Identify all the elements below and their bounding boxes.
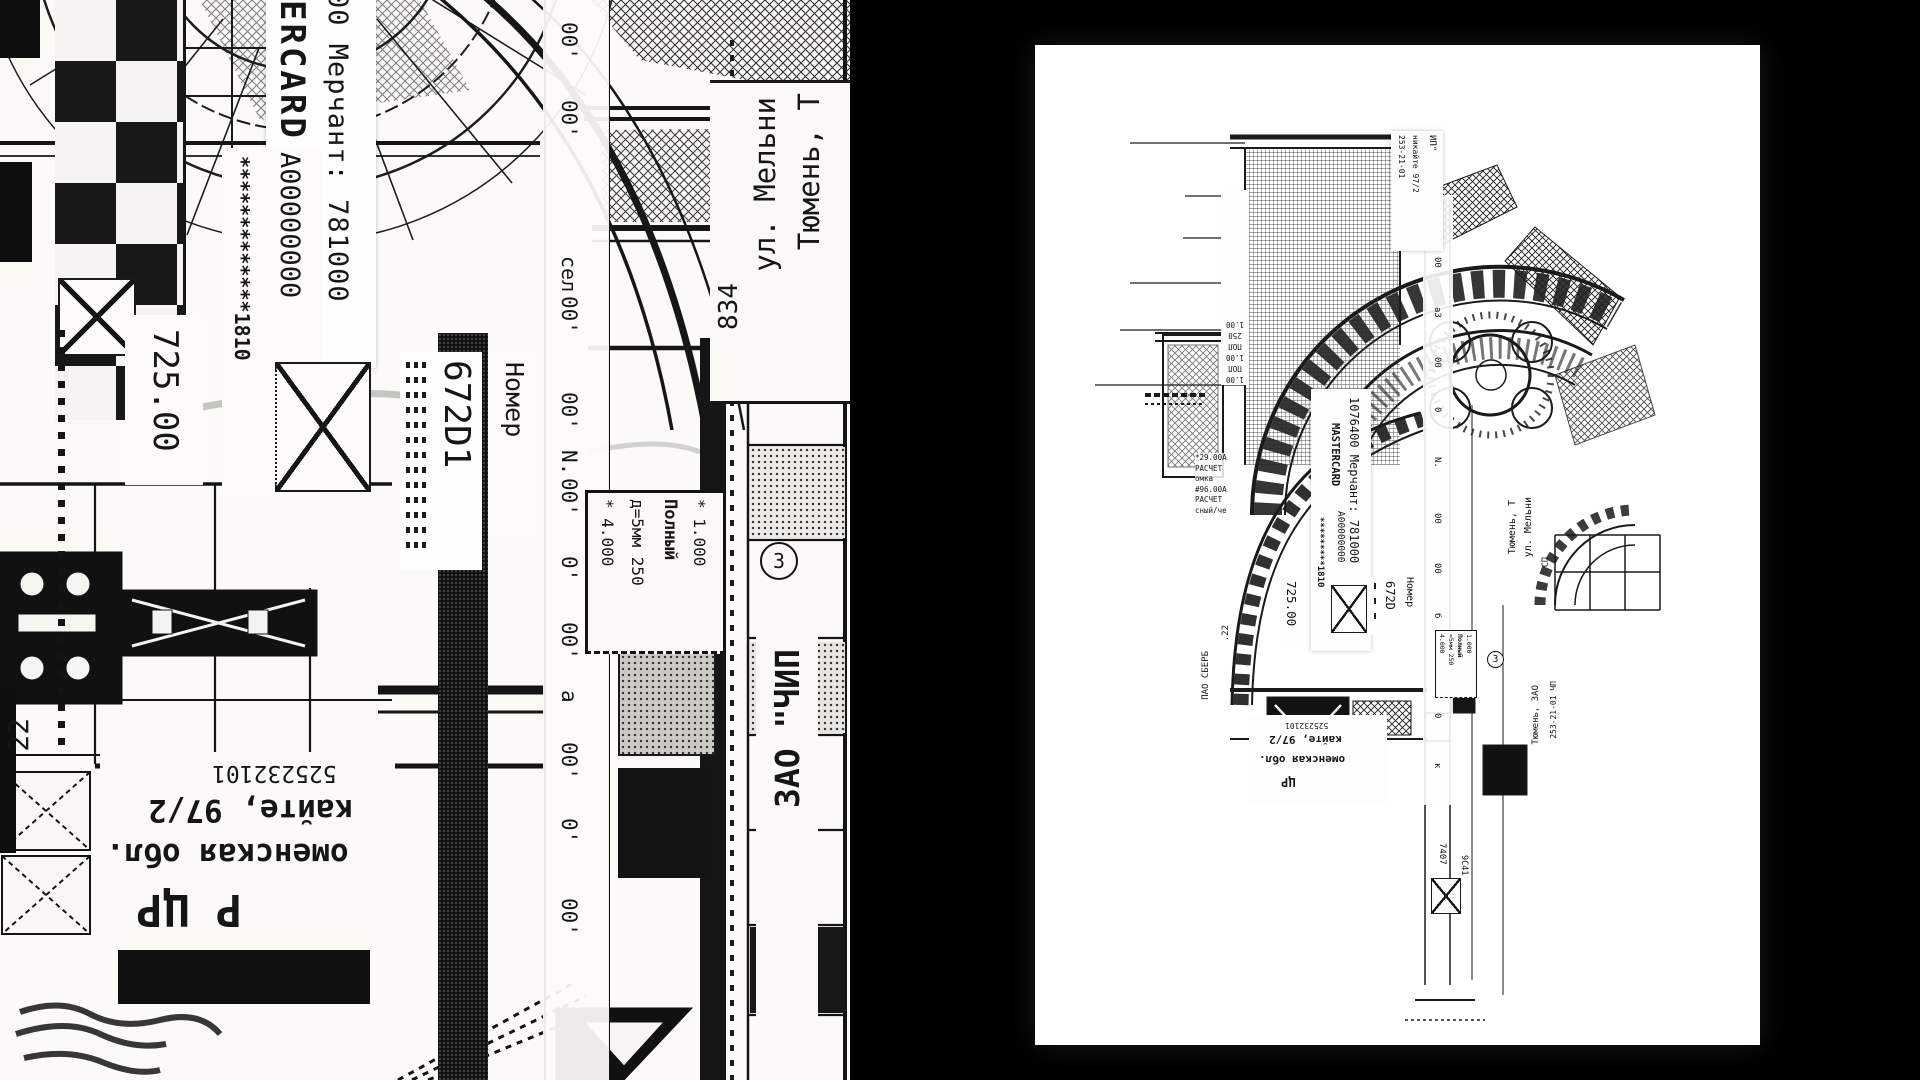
art-bottom-crossed-box — [1431, 878, 1461, 914]
tape-mark: 0' — [557, 818, 581, 843]
wall-tag: 250 — [1221, 330, 1249, 341]
nomer-text: Номер — [500, 362, 529, 437]
art-sber-text: ПАО СБЕРБ — [1201, 651, 1211, 700]
tally-dashes — [414, 362, 418, 557]
address-city-text: Тюмень, Т — [792, 93, 826, 250]
art-tape-mark: 0 — [1432, 407, 1442, 412]
black-bar — [118, 950, 370, 1004]
art-tape-mark: 00 — [1432, 563, 1442, 574]
address-street-text: ул. Мельни — [748, 97, 782, 272]
art-code-patch: 672D — [1371, 577, 1401, 635]
tape-mark: 00' — [557, 478, 581, 516]
edge-block — [0, 0, 40, 58]
tape-mark: 00' — [557, 392, 581, 430]
art-street-text: ул. Мельни — [1523, 497, 1534, 557]
art-auth-text: А00000000 — [1335, 511, 1346, 562]
tape-mark: сел — [557, 256, 581, 292]
amount-text: 725.00 — [145, 329, 185, 452]
tape-mark: 00' — [557, 296, 581, 334]
address-num-text: 834 — [714, 283, 744, 330]
wall-tag: 1.00 — [1221, 352, 1249, 363]
nomer-patch: Номер — [490, 356, 536, 536]
art-merchant-text: 1076400 Мерчант: 781000 — [1347, 397, 1361, 563]
art-tape-mark: N. — [1432, 457, 1442, 468]
art-zeros-tape: 00 00 а3 00 0 N. 00 00 б 00 0 к — [1423, 195, 1453, 805]
reversed-number: 525232101 — [212, 760, 337, 786]
card-mask-text: *************1810 — [230, 156, 254, 361]
art-top-line: никайте 97/2 — [1411, 135, 1420, 193]
edge-block — [0, 162, 32, 262]
art-sp-text: СП — [1541, 557, 1551, 567]
tape-mark: 00' — [557, 898, 581, 936]
wall-tag: ПОЛ — [1221, 363, 1249, 374]
art-bottom-code: 7407 — [1437, 843, 1447, 865]
art-tape-mark: а3 — [1432, 307, 1442, 318]
art-calc-block: *29.00А РАСЧЕТ омка #96.00А РАСЧЕТ сный/… — [1195, 453, 1243, 519]
receipt-brand-text: ERCARD — [272, 0, 312, 141]
art-tariff-line: 4.000 — [1438, 634, 1446, 654]
wall-tag: 1.00 — [1221, 374, 1249, 385]
reversed-line: оменская обл. — [106, 836, 349, 872]
art-top-line: ИП" — [1427, 135, 1437, 151]
code-patch: 672D1 — [400, 352, 482, 570]
black-square — [618, 768, 712, 878]
edge-block — [0, 688, 16, 853]
art-nomer-text: Номер — [1404, 577, 1415, 607]
tape-mark: 00' — [557, 22, 581, 60]
art-tariff-line: 1.000 — [1465, 634, 1473, 654]
art-tape-mark: 00 — [1432, 513, 1442, 524]
calc-line: РАСЧЕТ — [1195, 464, 1243, 475]
art-city-text: Тюмень, Т — [1507, 500, 1518, 554]
art-top-strip: ИП" никайте 97/2 253-21-01 — [1391, 131, 1443, 251]
art-right-strip-line: 253-21-01 ЧП — [1549, 681, 1558, 739]
art-tape-mark: к — [1432, 763, 1442, 768]
receipt-merchant-text: 00 Мерчант: 781000 — [322, 0, 353, 303]
calc-line: *29.00А — [1195, 453, 1243, 464]
calc-line: #96.00А — [1195, 485, 1243, 496]
tape-mark: 00' — [557, 622, 581, 660]
art-bottom-code2: 9С41 — [1459, 855, 1469, 875]
crossed-box — [275, 362, 371, 492]
tape-mark: N. — [557, 450, 581, 475]
address-strip: 834 ул. Мельни Тюмень, Т — [710, 80, 850, 404]
edge-number: 22 — [2, 718, 35, 752]
card-auth-text: А00000000 — [274, 152, 305, 298]
tariff-line: д=5мм 250 — [628, 499, 647, 586]
art-tape-mark: 00 — [1432, 257, 1442, 268]
tape-mark: 0' — [557, 556, 581, 581]
art-reversed-number: 525232101 — [1285, 721, 1328, 730]
tape-mark: а — [557, 690, 581, 703]
wall-tags: 1.00 ПОЛ 1.00 ПОЛ 250 1.00 — [1221, 190, 1249, 385]
tariff-box: * 1.000 Полный д=5мм 250 * 4.000 — [585, 490, 726, 654]
art-tape-mark: 00 — [1432, 357, 1442, 368]
collage-viewer: 22 ERCARD 00 Мерчант: 781000 ***********… — [0, 0, 1920, 1080]
art-right-strip-line: Тюмень, ЗАО — [1531, 685, 1541, 745]
art-tape-mark: б — [1432, 613, 1442, 618]
collage-detail-panel: 22 ERCARD 00 Мерчант: 781000 ***********… — [0, 0, 850, 1080]
art-reversed-line: ЦР — [1281, 775, 1295, 789]
art-brand-text: MASTERCARD — [1329, 423, 1341, 486]
tally-dashes — [422, 362, 426, 557]
tariff-line: * 1.000 — [690, 499, 709, 566]
art-amount-text: 725.00 — [1284, 581, 1299, 626]
art-circled-three: 3 — [1487, 651, 1504, 668]
art-tariff-line: =5мм 250 — [1447, 634, 1455, 665]
reversed-line: кайте, 97/2 — [148, 792, 353, 828]
textured-cell — [750, 447, 845, 538]
art-sber-n22: .22 — [1221, 625, 1231, 641]
tally-dashes — [406, 362, 410, 557]
tape-mark: 00' — [557, 100, 581, 138]
art-tally-dashes — [1374, 583, 1376, 627]
tariff-line: Полный — [660, 499, 680, 560]
zao-strip: ЗАО "ЧИП — [756, 635, 818, 1080]
circled-three: 3 — [760, 542, 798, 580]
art-code-text: 672D — [1383, 581, 1397, 610]
reversed-line: Р ЦР — [136, 884, 242, 935]
art-tariff-line: Полный — [1456, 634, 1464, 657]
tariff-line: * 4.000 — [598, 499, 617, 566]
tape-mark: 00' — [557, 742, 581, 780]
art-amount-patch: 725.00 — [1279, 575, 1303, 647]
calc-line: сный/че — [1195, 506, 1243, 517]
wall-tag: ПОЛ — [1221, 341, 1249, 352]
amount-patch: 725.00 — [125, 315, 203, 485]
zao-text: ЗАО "ЧИП — [768, 649, 807, 808]
grey-square — [618, 640, 716, 756]
calc-line: омка — [1195, 474, 1243, 485]
dotted-strip — [58, 330, 65, 745]
art-top-line: 253-21-01 — [1397, 135, 1406, 178]
art-crossed-box — [1331, 585, 1367, 633]
calc-line: РАСЧЕТ — [1195, 495, 1243, 506]
code-text: 672D1 — [436, 360, 477, 468]
art-tape-mark: 0 — [1432, 713, 1442, 718]
art-reversed-line: оменская обл. — [1259, 753, 1345, 766]
artwork-page: ИП" никайте 97/2 253-21-01 1.00 ПОЛ 1.00… — [1035, 45, 1760, 1045]
art-tariff-box: 1.000 Полный =5мм 250 4.000 — [1435, 630, 1477, 698]
art-reversed-line: кайте, 97/2 — [1269, 733, 1342, 746]
wall-tag: 1.00 — [1221, 319, 1249, 330]
art-mask-text: *********1810 — [1315, 517, 1325, 587]
